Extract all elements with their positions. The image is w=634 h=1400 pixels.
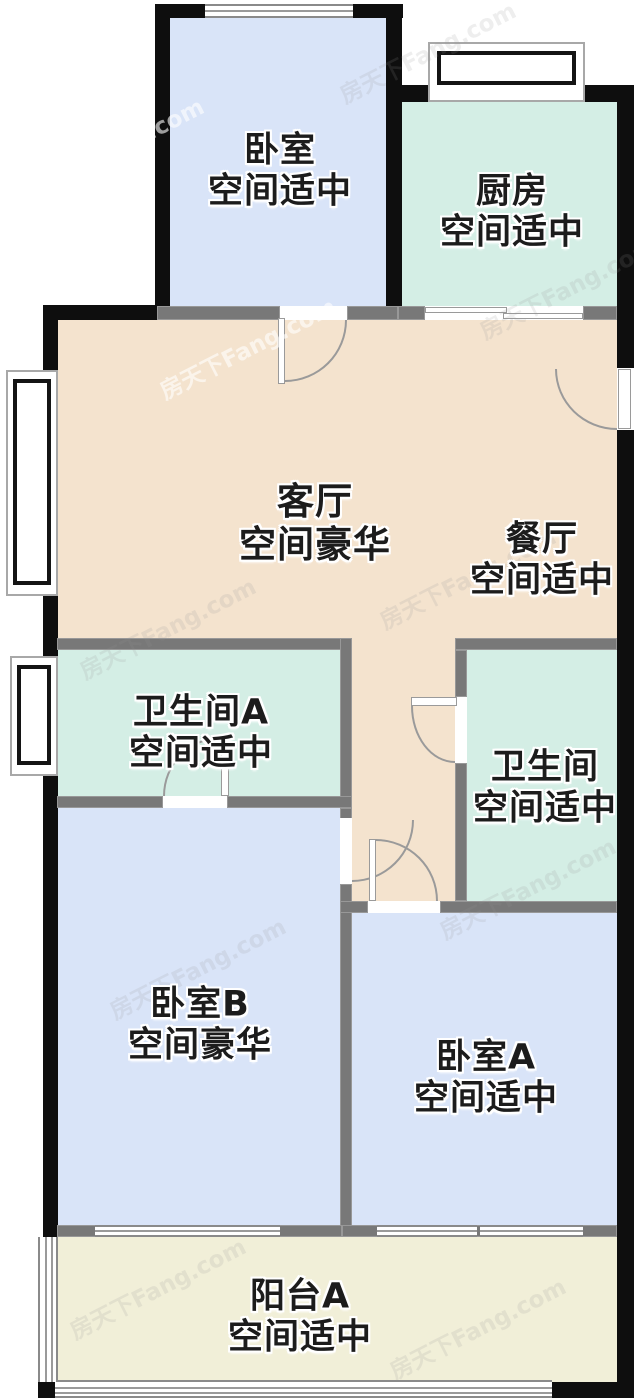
- sliding-door-panel-left: [425, 307, 507, 313]
- room-name: 餐厅: [470, 519, 614, 560]
- wall-left-c: [43, 766, 58, 1237]
- doorway-bedroom: [280, 306, 347, 320]
- label-kitchen: 厨房 空间适中: [440, 171, 584, 252]
- room-status: 空间适中: [473, 788, 617, 829]
- room-name: 卫生间A: [129, 692, 273, 733]
- wall-bedroom-kitchen: [386, 4, 402, 318]
- floor-plan: 房天下Fang.com 房天下Fang.com 房天下Fang.com 房天下F…: [0, 0, 634, 1400]
- window-bedroom-a-balcony-1: [377, 1225, 477, 1237]
- label-bathroom: 卫生间 空间适中: [473, 747, 617, 828]
- room-status: 空间适中: [208, 171, 352, 212]
- label-bedroom-b: 卧室B 空间豪华: [128, 984, 272, 1065]
- wall-bathroom-a-bottom-right: [227, 796, 352, 808]
- room-status: 空间适中: [470, 560, 614, 601]
- room-status: 空间豪华: [128, 1025, 272, 1066]
- room-name: 厨房: [440, 171, 584, 212]
- wall-balcony-corner-right: [550, 1382, 634, 1398]
- window-bedroom-top: [205, 4, 353, 18]
- balcony-railing-left: [38, 1237, 58, 1382]
- wall-kitchen-bottom-right: [583, 306, 617, 320]
- doorway-bathroom: [455, 697, 467, 763]
- wall-bathroom-left-top: [455, 650, 467, 697]
- room-name: 卫生间: [473, 747, 617, 788]
- door-leaf-bedroom-a: [369, 839, 376, 901]
- doorway-bedroom-a: [368, 901, 440, 913]
- room-name: 卧室A: [414, 1037, 558, 1078]
- window-bedroom-b-balcony: [95, 1225, 280, 1237]
- wall-bedroom-bottom-right: [347, 306, 398, 320]
- wall-bathroom-top: [455, 638, 617, 650]
- wall-bathroom-left-bottom: [455, 763, 467, 901]
- label-balcony-a: 阳台A 空间适中: [228, 1276, 372, 1357]
- label-dining-room: 餐厅 空间适中: [470, 519, 614, 600]
- door-leaf-bedroom: [278, 318, 285, 384]
- window-living-bay-inner: [13, 379, 51, 585]
- window-bathroom-a-bay-inner: [17, 665, 51, 765]
- wall-bedroom-a-top-left: [340, 901, 368, 913]
- room-status: 空间适中: [129, 733, 273, 774]
- label-bedroom-a: 卧室A 空间适中: [414, 1037, 558, 1118]
- window-kitchen-bay-inner: [437, 51, 576, 85]
- wall-right-upper: [617, 102, 634, 368]
- wall-bathroom-a-top: [57, 638, 352, 650]
- label-living-room: 客厅 空间豪华: [239, 481, 391, 567]
- wall-bedroom-bottom-left: [157, 306, 280, 320]
- sliding-door-panel-right: [503, 313, 583, 319]
- room-status: 空间适中: [414, 1078, 558, 1119]
- room-name: 卧室: [208, 130, 352, 171]
- doorway-bedroom-b: [340, 818, 352, 884]
- label-bedroom: 卧室 空间适中: [208, 130, 352, 211]
- window-bedroom-a-balcony-2: [480, 1225, 583, 1237]
- wall-bedroom-left: [155, 4, 170, 318]
- room-status: 空间适中: [228, 1317, 372, 1358]
- wall-bedroom-b-right-bottom: [340, 884, 352, 1237]
- wall-bathroom-a-right: [340, 638, 352, 808]
- wall-bathroom-a-bottom-left: [57, 796, 163, 808]
- label-bathroom-a: 卫生间A 空间适中: [129, 692, 273, 773]
- room-status: 空间豪华: [239, 524, 391, 567]
- wall-right-lower: [617, 430, 634, 1382]
- room-name: 客厅: [239, 481, 391, 524]
- room-name: 阳台A: [228, 1276, 372, 1317]
- room-status: 空间适中: [440, 212, 584, 253]
- room-name: 卧室B: [128, 984, 272, 1025]
- balcony-railing-bottom: [55, 1380, 552, 1398]
- door-leaf-entry: [618, 369, 631, 429]
- wall-bedroom-a-top-right: [440, 901, 617, 913]
- doorway-bathroom-a: [163, 796, 227, 808]
- wall-living-top-left: [43, 305, 157, 320]
- door-leaf-bathroom: [411, 697, 457, 706]
- wall-kitchen-bottom-left: [398, 306, 425, 320]
